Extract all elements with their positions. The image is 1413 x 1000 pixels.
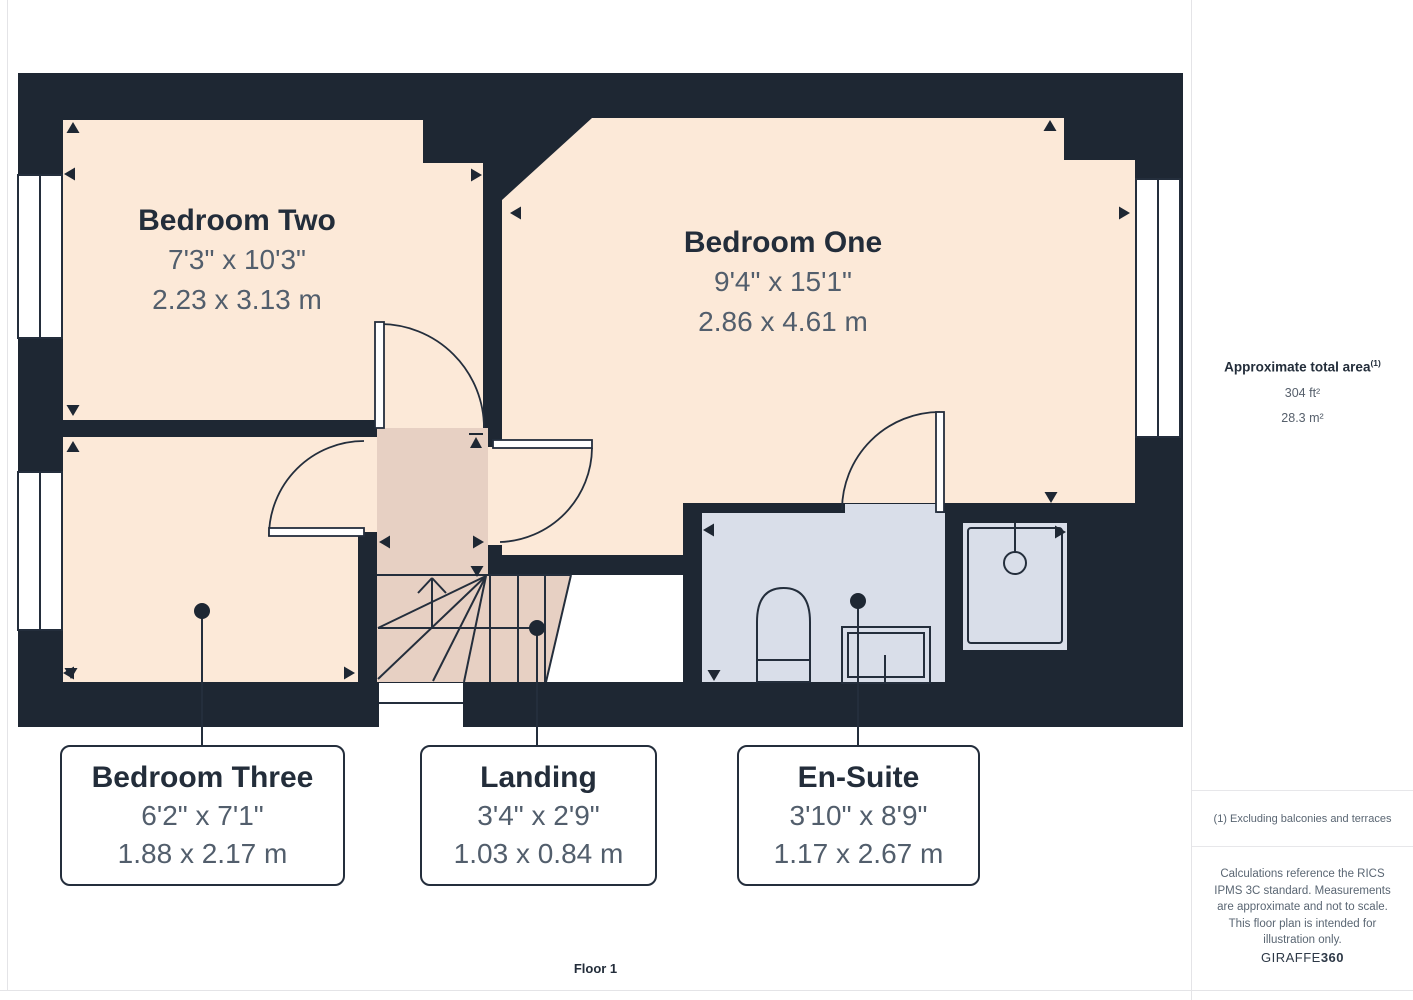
stairs-lower-flight	[379, 683, 463, 727]
bedroom-one-floor	[502, 118, 1135, 555]
doorway-bedroom-three	[358, 437, 377, 532]
floor-label: Floor 1	[0, 961, 1191, 976]
page-bottom-border	[0, 990, 1413, 991]
room-marker-dot	[529, 620, 545, 636]
room-dim-metric: 1.88 x 2.17 m	[118, 835, 288, 873]
door-leaf	[269, 528, 364, 536]
room-dim-metric: 1.17 x 2.67 m	[774, 835, 944, 873]
ensuite-callout: En-Suite 3'10" x 8'9" 1.17 x 2.67 m	[737, 745, 980, 886]
ensuite-floor	[702, 513, 945, 682]
bedroom-three-callout: Bedroom Three 6'2" x 7'1" 1.88 x 2.17 m	[60, 745, 345, 886]
total-area-metric: 28.3 m²	[1192, 411, 1413, 425]
page-left-border	[7, 0, 8, 990]
brand-suffix: 360	[1321, 950, 1344, 965]
room-name: Bedroom Three	[92, 759, 314, 797]
door-leaf	[375, 322, 384, 428]
giraffe360-logo: GIRAFFE360	[1192, 950, 1413, 965]
total-area-title-text: Approximate total area	[1224, 360, 1370, 375]
door-leaf	[936, 412, 944, 512]
floorplan-page: Bedroom Two 7'3" x 10'3" 2.23 x 3.13 m B…	[0, 0, 1413, 1000]
window	[1136, 179, 1180, 437]
room-name: En-Suite	[798, 759, 920, 797]
total-area-imperial: 304 ft²	[1192, 386, 1413, 400]
footnote: (1) Excluding balconies and terraces	[1192, 790, 1413, 847]
room-dim-imperial: 6'2" x 7'1"	[141, 797, 263, 835]
bedroom-three-floor	[63, 437, 358, 682]
room-name: Landing	[480, 759, 597, 797]
room-dim-imperial: 3'10" x 8'9"	[790, 797, 928, 835]
bedroom-two-floor	[63, 120, 483, 430]
doorway-ensuite	[845, 504, 937, 516]
window	[18, 472, 62, 630]
window	[18, 175, 62, 338]
disclaimer-text: Calculations reference the RICS IPMS 3C …	[1207, 866, 1398, 949]
info-sidebar: Approximate total area(1) 304 ft² 28.3 m…	[1191, 0, 1413, 1000]
total-area-note-ref: (1)	[1370, 358, 1380, 368]
landing-callout: Landing 3'4" x 2'9" 1.03 x 0.84 m	[420, 745, 657, 886]
room-dim-imperial: 3'4" x 2'9"	[477, 797, 599, 835]
room-marker-dot	[850, 593, 866, 609]
room-dim-metric: 1.03 x 0.84 m	[454, 835, 624, 873]
room-marker-dot	[194, 603, 210, 619]
brand-name: GIRAFFE	[1261, 950, 1321, 965]
door-leaf	[493, 440, 592, 448]
total-area-title: Approximate total area(1)	[1192, 358, 1413, 375]
total-area-block: Approximate total area(1) 304 ft² 28.3 m…	[1192, 358, 1413, 425]
